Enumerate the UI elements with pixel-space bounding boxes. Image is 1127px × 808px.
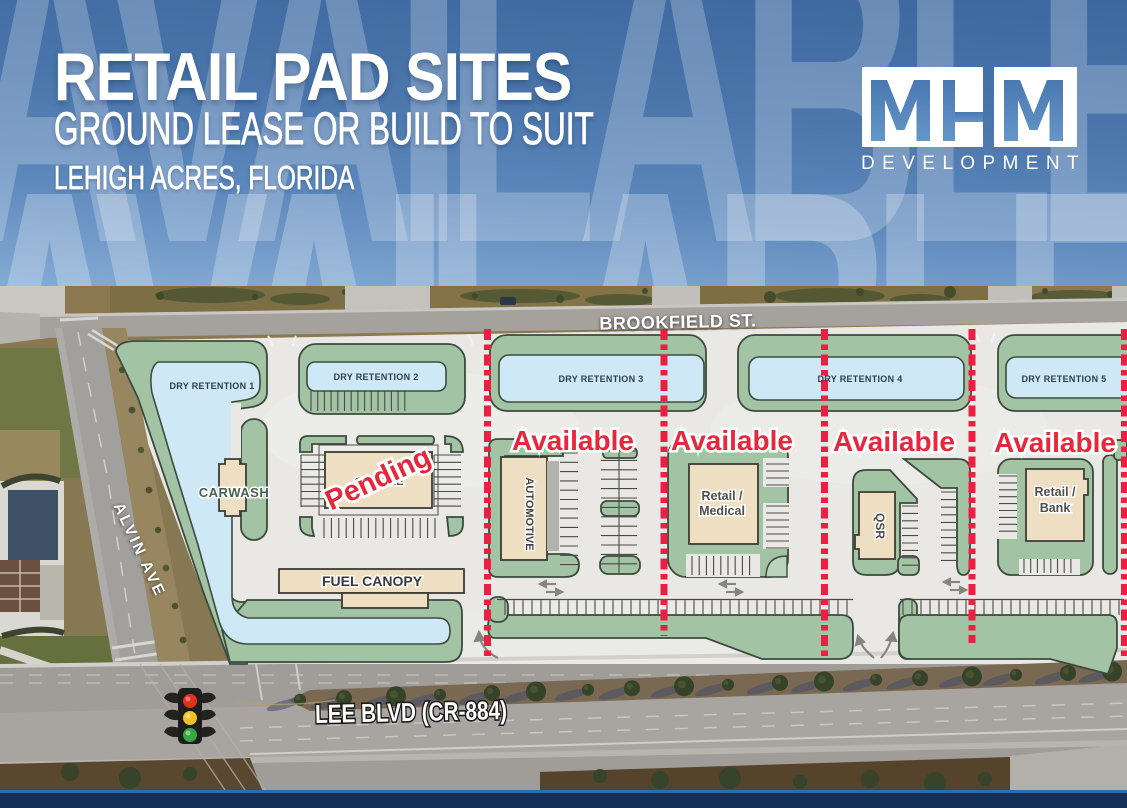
svg-text:DRY RETENTION 3: DRY RETENTION 3 — [558, 374, 643, 384]
svg-text:DRY RETENTION 1: DRY RETENTION 1 — [169, 381, 254, 391]
svg-text:BROOKFIELD ST.: BROOKFIELD ST. — [599, 310, 756, 333]
svg-text:Retail /: Retail / — [702, 489, 744, 503]
svg-text:DRY RETENTION 4: DRY RETENTION 4 — [817, 374, 902, 384]
svg-text:AUTOMOTIVE: AUTOMOTIVE — [523, 477, 535, 550]
svg-text:DRY RETENTION 5: DRY RETENTION 5 — [1021, 374, 1106, 384]
svg-text:LEE BLVD (CR-884): LEE BLVD (CR-884) — [315, 695, 508, 729]
svg-text:DEVELOPMENT: DEVELOPMENT — [861, 153, 1086, 174]
svg-text:Available: Available — [512, 425, 634, 456]
svg-text:Medical: Medical — [699, 504, 745, 518]
svg-text:QSR: QSR — [873, 513, 887, 539]
svg-text:CARWASH: CARWASH — [199, 485, 269, 500]
svg-text:Available: Available — [994, 427, 1116, 458]
svg-text:Bank: Bank — [1040, 501, 1071, 515]
svg-text:Available: Available — [671, 425, 793, 456]
svg-text:DRY RETENTION 2: DRY RETENTION 2 — [333, 372, 418, 382]
svg-text:Available: Available — [833, 426, 955, 457]
svg-text:Retail /: Retail / — [1035, 485, 1077, 499]
svg-text:FUEL CANOPY: FUEL CANOPY — [322, 573, 423, 589]
